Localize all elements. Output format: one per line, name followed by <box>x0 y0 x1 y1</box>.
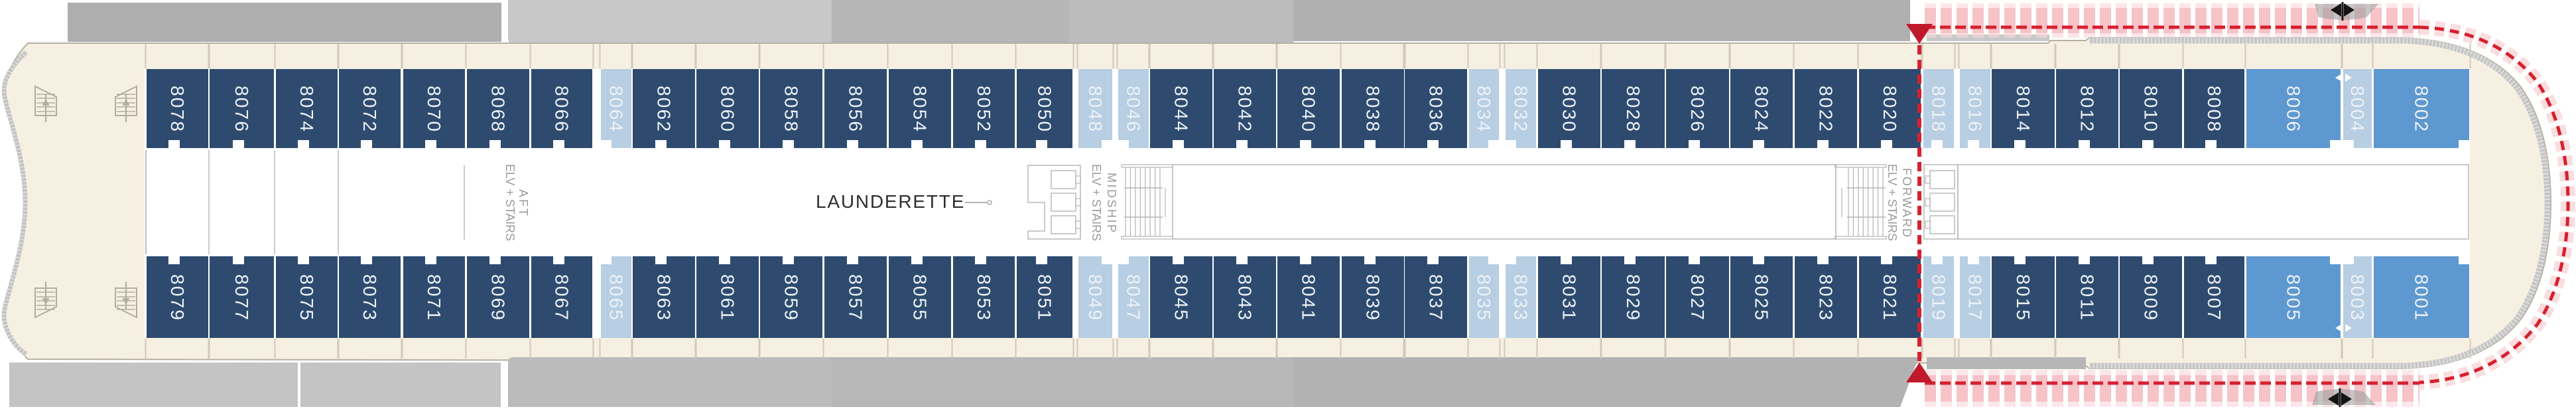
svg-text:LAUNDERETTE: LAUNDERETTE <box>816 191 965 212</box>
svg-text:ELV + STAIRS: ELV + STAIRS <box>1090 164 1103 241</box>
svg-text:FORWARD: FORWARD <box>1900 168 1913 237</box>
svg-text:AFT: AFT <box>517 189 530 216</box>
svg-text:ELV + STAIRS: ELV + STAIRS <box>1886 164 1899 241</box>
svg-text:ELV + STAIRS: ELV + STAIRS <box>503 164 517 241</box>
